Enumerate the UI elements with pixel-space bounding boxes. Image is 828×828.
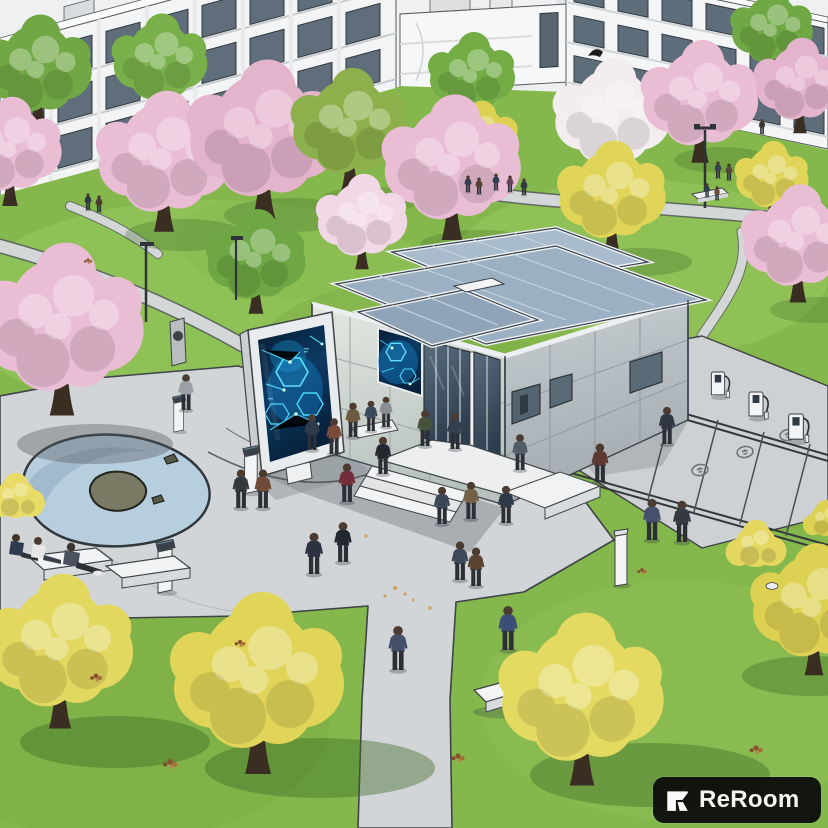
rendering-canvas [0, 0, 828, 828]
watermark-badge: ReRoom [653, 777, 821, 823]
info-totem [170, 318, 186, 366]
reroom-logo-icon [664, 787, 690, 813]
watermark-label: ReRoom [699, 788, 799, 812]
pond-island-rock [90, 472, 146, 511]
campus-rendering: ReRoom [0, 0, 828, 828]
